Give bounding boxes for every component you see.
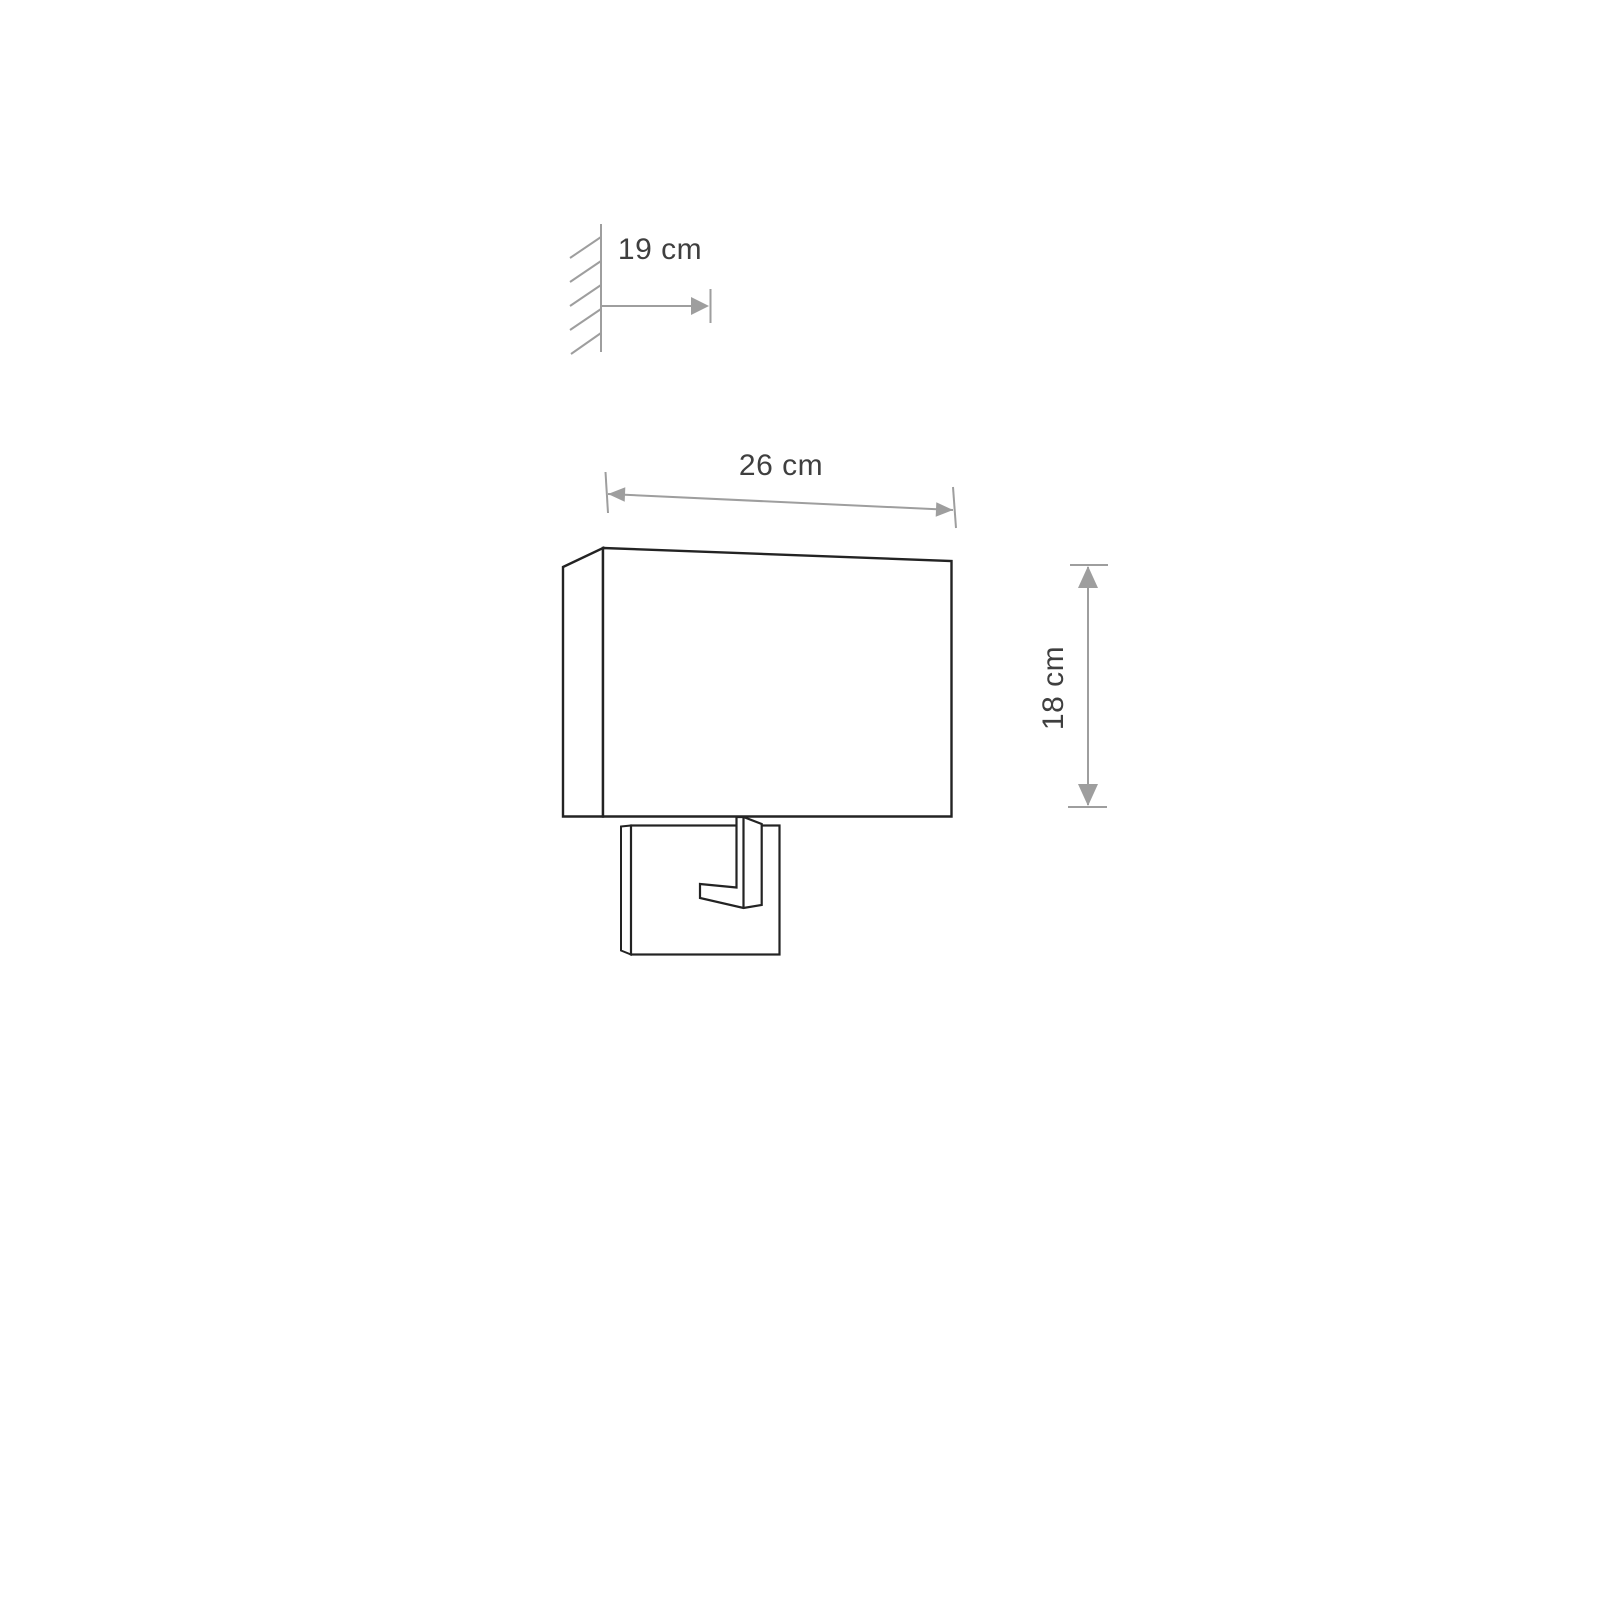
shade-front-face bbox=[603, 548, 952, 817]
shade-side-face bbox=[563, 548, 603, 817]
hatch-line bbox=[570, 261, 601, 282]
hatch-line bbox=[570, 285, 601, 306]
height-dimension: 18 cm bbox=[1037, 565, 1108, 807]
extension-tick bbox=[953, 487, 956, 528]
arrowhead-right-icon bbox=[936, 502, 953, 517]
width-dimension: 26 cm bbox=[606, 449, 957, 528]
arrowhead-up-icon bbox=[1078, 566, 1098, 588]
extension-tick bbox=[606, 472, 609, 513]
mount-bracket bbox=[621, 817, 780, 955]
bracket-plate-side bbox=[621, 826, 631, 955]
hatch-line bbox=[570, 237, 601, 258]
width-label: 26 cm bbox=[739, 449, 823, 482]
height-label: 18 cm bbox=[1037, 646, 1070, 730]
width-arrow-line bbox=[608, 494, 953, 510]
arrowhead-right-icon bbox=[691, 297, 709, 315]
depth-label: 19 cm bbox=[618, 233, 702, 266]
wall-mount-symbol bbox=[570, 224, 601, 354]
hatch-line bbox=[571, 333, 601, 354]
lamp-shade bbox=[563, 548, 952, 817]
hatch-line bbox=[570, 309, 601, 330]
arrowhead-left-icon bbox=[608, 487, 625, 502]
depth-dimension: 19 cm bbox=[570, 224, 711, 354]
dimension-diagram: 19 cm 26 cm 18 cm bbox=[0, 0, 1600, 1600]
arrowhead-down-icon bbox=[1078, 784, 1098, 806]
